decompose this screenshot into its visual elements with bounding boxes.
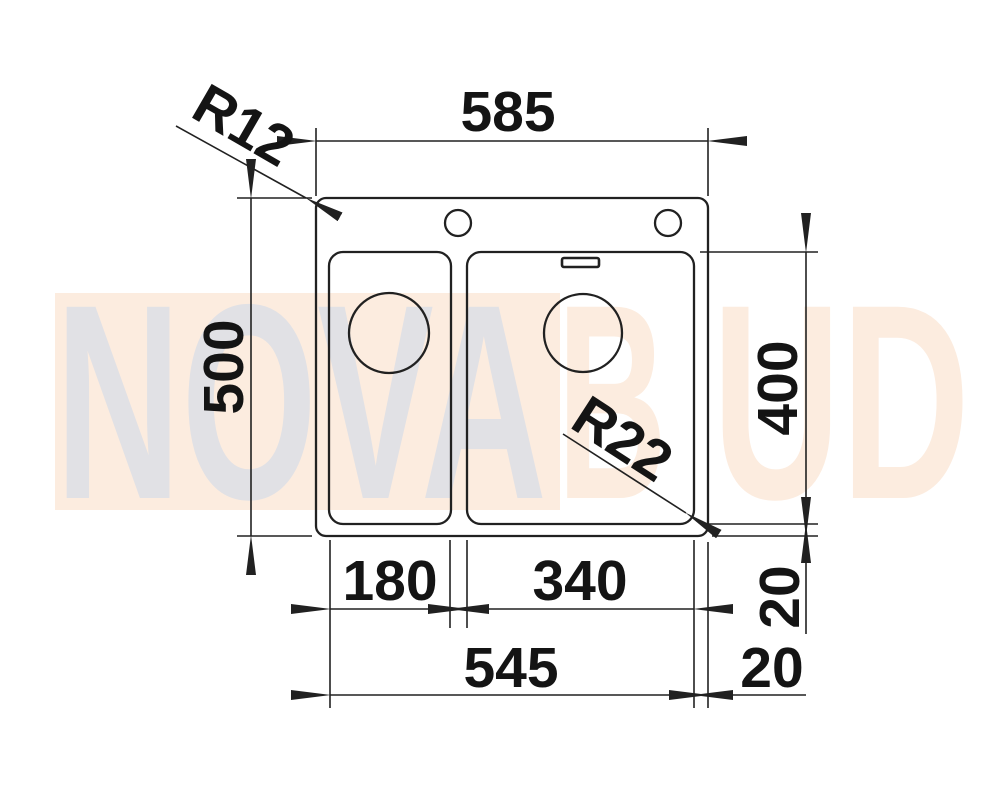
watermark-text-nova: NOVA bbox=[55, 246, 547, 557]
dim-right-bowl-width-label: 340 bbox=[532, 549, 627, 613]
dim-right-bowl-width: 340 bbox=[467, 549, 694, 613]
faucet-hole-left bbox=[445, 210, 471, 236]
dim-bowls-overall-width: 545 bbox=[330, 636, 694, 700]
dim-overall-depth-label: 500 bbox=[192, 319, 256, 414]
dim-right-offset: 20 bbox=[708, 636, 806, 700]
dim-bowls-overall-width-label: 545 bbox=[463, 636, 558, 700]
dim-overall-width: 585 bbox=[316, 80, 708, 196]
faucet-hole-right bbox=[655, 210, 681, 236]
dim-left-bowl-width: 180 bbox=[330, 549, 450, 613]
dim-left-bowl-width-label: 180 bbox=[342, 549, 437, 613]
dim-outer-radius: R12 bbox=[176, 72, 306, 198]
dim-overall-width-label: 585 bbox=[460, 80, 555, 144]
dim-bowl-depth-label: 400 bbox=[746, 340, 810, 435]
dim-right-offset-label: 20 bbox=[740, 636, 803, 700]
dim-bottom-offset-label: 20 bbox=[748, 565, 812, 628]
drawing-canvas: NOVA B UD 585 R12 500 400 bbox=[0, 0, 1000, 800]
